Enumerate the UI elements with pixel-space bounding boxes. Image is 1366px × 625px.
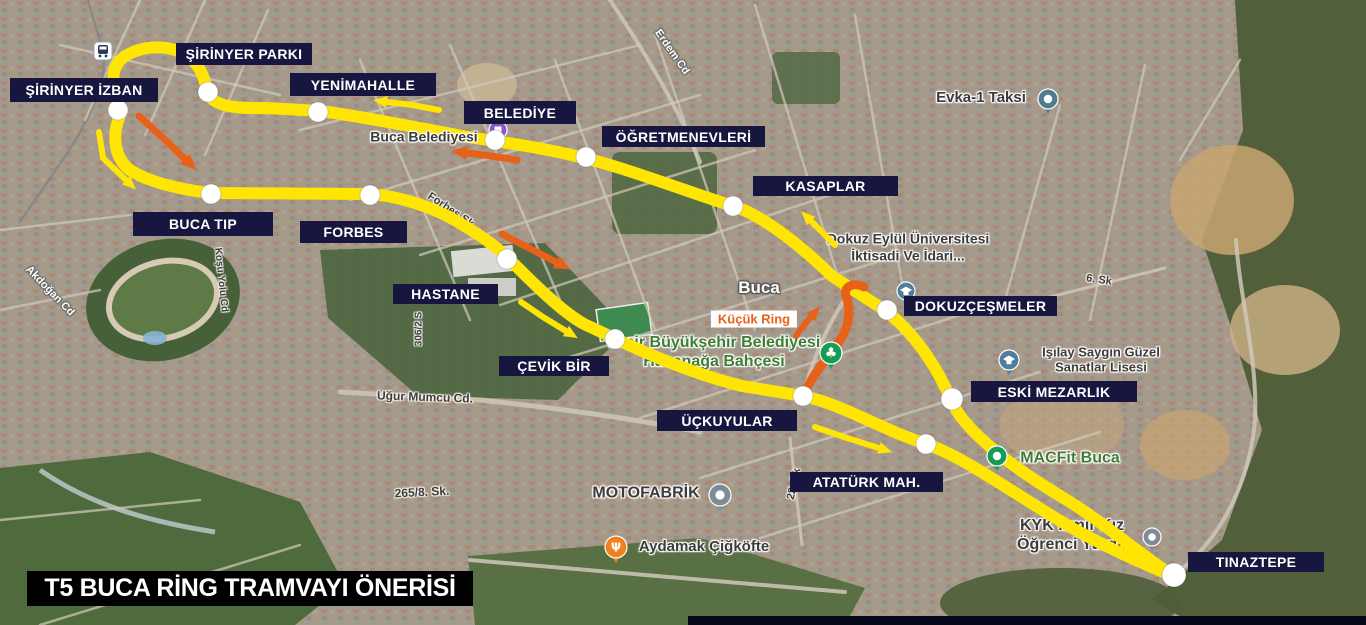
station-label-kasaplar: KASAPLAR [753,176,898,196]
station-label-belediye: BELEDİYE [464,101,576,124]
station-label-buca-tip: BUCA TIP [133,212,273,236]
station-label-forbes: FORBES [300,221,407,243]
station-label-ataturk-mah: ATATÜRK MAH. [790,472,943,492]
station-label-uckuyular: ÜÇKUYULAR [657,410,797,431]
station-label-cevik-bir: ÇEVİK BİR [499,356,609,376]
station-label-ogretmenevleri: ÖĞRETMENEVLERİ [602,126,765,147]
station-label-sirinyer-parki: ŞİRİNYER PARKI [176,43,312,65]
station-label-dokuzcesmeler: DOKUZÇEŞMELER [904,296,1057,316]
station-label-sirinyer-izban: ŞİRİNYER İZBAN [10,78,158,102]
map-canvas: Evka-1 TaksiDokuz Eylül Üniversitesiİkti… [0,0,1366,625]
station-label-yenimahalle: YENİMAHALLE [290,73,436,96]
map-title-bar: T5 BUCA RİNG TRAMVAYI ÖNERİSİ [27,571,473,606]
kucuk-ring-label: Küçük Ring [711,311,797,328]
station-label-eski-mezarlik: ESKİ MEZARLIK [971,381,1137,402]
station-label-tinaztepe: TINAZTEPE [1188,552,1324,572]
buca-belediyesi-label: Buca Belediyesi [370,129,477,146]
station-label-hastane: HASTANE [393,284,498,304]
map-title-text: T5 BUCA RİNG TRAMVAYI ÖNERİSİ [44,574,455,603]
route-labels-layer: Buca BelediyesiŞİRİNYER İZBANŞİRİNYER PA… [0,0,1366,625]
